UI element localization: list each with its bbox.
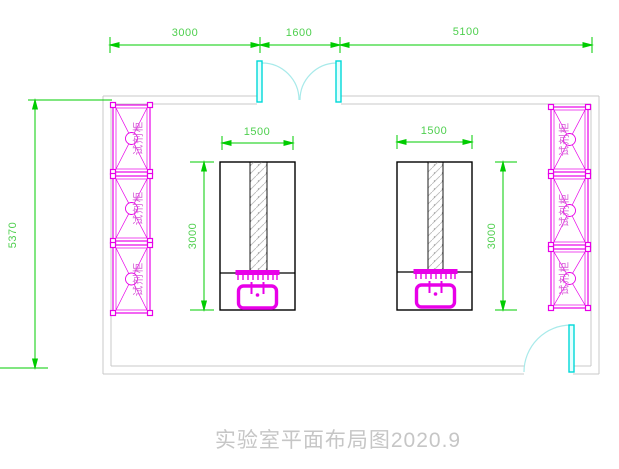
dim-arrow <box>33 359 38 368</box>
dim-arrow <box>284 141 293 146</box>
door-swing-arc <box>300 63 336 100</box>
sink-drain <box>256 293 260 297</box>
dim-arrow <box>222 141 231 146</box>
dim-arrow <box>202 162 207 171</box>
cabinet-cell <box>549 174 591 248</box>
cabinet-cell <box>111 174 153 244</box>
dim-arrow <box>260 43 269 48</box>
dim-arrow <box>463 140 472 145</box>
cabinet-cell <box>111 243 153 316</box>
sink-drain <box>434 292 438 296</box>
left-cabinet-column <box>111 103 153 316</box>
floor-plan-linework <box>0 0 619 469</box>
door-leaf <box>336 61 341 102</box>
bench-center-hatch-strip <box>250 162 267 273</box>
bench-center-hatch-strip <box>428 162 443 272</box>
sink-grate <box>414 269 458 274</box>
cabinet-cell <box>111 103 153 175</box>
dim-arrow <box>501 301 506 310</box>
door-leaf <box>257 61 262 102</box>
door-swing-arc <box>262 63 299 100</box>
door-swing-arc <box>524 325 571 372</box>
dim-arrow <box>33 100 38 109</box>
bottom-right-door <box>524 325 574 372</box>
right-cabinet-column <box>549 105 591 311</box>
right-lab-bench <box>397 162 472 310</box>
dim-arrow <box>397 140 406 145</box>
room-walls <box>103 96 599 374</box>
left-lab-bench <box>220 162 295 310</box>
door-leaf <box>569 325 574 372</box>
cabinet-cell <box>549 105 591 175</box>
dim-arrow <box>340 43 349 48</box>
top-double-door <box>257 61 341 102</box>
dim-arrow <box>202 301 207 310</box>
dim-arrow <box>583 43 592 48</box>
dim-arrow <box>110 43 119 48</box>
cabinet-cell <box>549 247 591 311</box>
sink-grate <box>236 270 280 275</box>
floor-plan-canvas: 3000 1600 5100 5370 1500 3000 1500 3000 … <box>0 0 619 469</box>
dim-arrow <box>501 162 506 171</box>
